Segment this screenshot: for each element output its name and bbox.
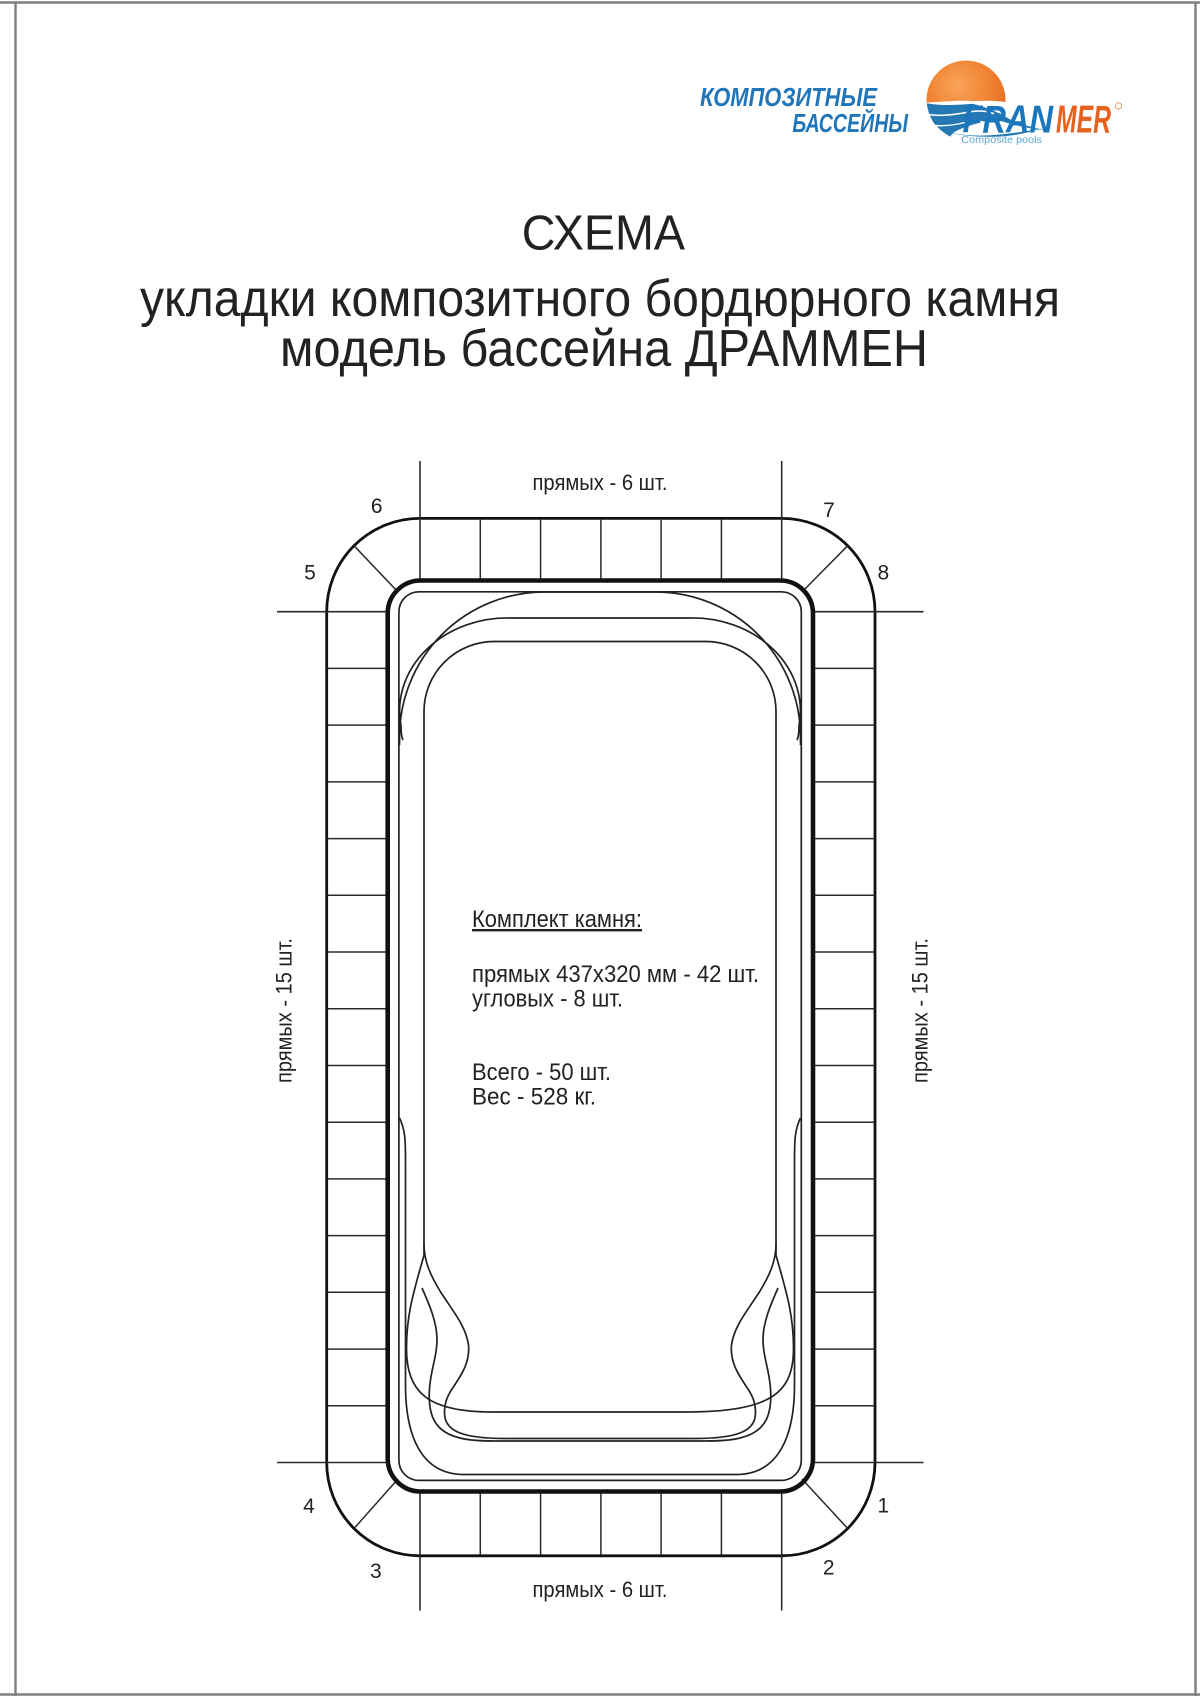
svg-text:модель бассейна ДРАММЕН: модель бассейна ДРАММЕН	[280, 320, 928, 378]
svg-text:прямых - 6 шт.: прямых - 6 шт.	[533, 470, 668, 495]
svg-text:прямых - 6 шт.: прямых - 6 шт.	[533, 1577, 668, 1602]
svg-text:Всего - 50 шт.: Всего - 50 шт.	[472, 1059, 611, 1086]
svg-text:Вес - 528 кг.: Вес - 528 кг.	[472, 1084, 596, 1111]
svg-text:прямых - 15 шт.: прямых - 15 шт.	[272, 938, 297, 1083]
svg-text:СХЕМА: СХЕМА	[522, 207, 686, 261]
svg-text:Composite pools: Composite pools	[961, 134, 1042, 146]
svg-text:3: 3	[370, 1560, 382, 1583]
svg-text:2: 2	[823, 1557, 835, 1580]
svg-text:Комплект камня:: Комплект камня:	[472, 906, 642, 933]
svg-text:6: 6	[371, 495, 383, 518]
svg-text:4: 4	[303, 1495, 315, 1518]
svg-text:7: 7	[823, 499, 835, 522]
svg-text:прямых - 15 шт.: прямых - 15 шт.	[908, 938, 933, 1083]
svg-text:БАССЕЙНЫ: БАССЕЙНЫ	[792, 108, 908, 138]
svg-text:угловых - 8 шт.: угловых - 8 шт.	[472, 986, 623, 1013]
svg-text:1: 1	[877, 1494, 889, 1517]
svg-text:8: 8	[877, 562, 889, 585]
svg-text:прямых 437х320 мм - 42 шт.: прямых 437х320 мм - 42 шт.	[472, 961, 759, 988]
svg-text:5: 5	[304, 562, 316, 585]
svg-text:MER: MER	[1056, 98, 1111, 141]
